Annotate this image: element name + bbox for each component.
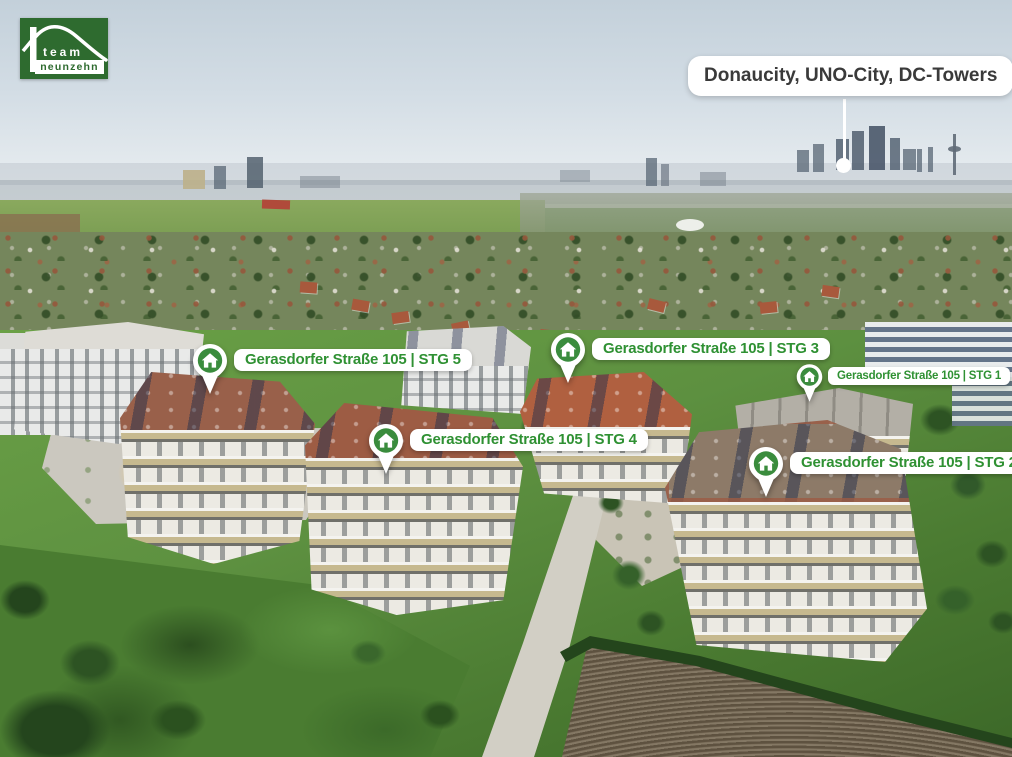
logo-text-team: team bbox=[43, 45, 83, 59]
marker-label: Gerasdorfer Straße 105 | STG 2 bbox=[790, 452, 1012, 474]
map-pin-stg5[interactable]: Gerasdorfer Straße 105 | STG 5 bbox=[192, 343, 472, 395]
building-stg5 bbox=[120, 372, 315, 564]
building-facade bbox=[120, 430, 315, 564]
callout-line bbox=[843, 99, 846, 159]
marker-label: Gerasdorfer Straße 105 | STG 4 bbox=[410, 429, 648, 451]
logo-text-neunzehn: neunzehn bbox=[35, 60, 104, 74]
team-neunzehn-logo: team neunzehn bbox=[20, 18, 108, 79]
building-facade bbox=[665, 502, 927, 662]
map-pin-stg4[interactable]: Gerasdorfer Straße 105 | STG 4 bbox=[368, 423, 648, 475]
marker-label: Gerasdorfer Straße 105 | STG 1 bbox=[828, 367, 1010, 385]
marker-label: Gerasdorfer Straße 105 | STG 3 bbox=[592, 338, 830, 360]
house-pin-icon bbox=[550, 332, 586, 384]
map-pin-stg3[interactable]: Gerasdorfer Straße 105 | STG 3 bbox=[550, 332, 830, 384]
map-pin-stg1[interactable]: Gerasdorfer Straße 105 | STG 1 bbox=[796, 363, 1010, 403]
callout-label: Donaucity, UNO-City, DC-Towers bbox=[688, 56, 1012, 96]
map-pin-stg2[interactable]: Gerasdorfer Straße 105 | STG 2 bbox=[748, 446, 1012, 498]
marker-label: Gerasdorfer Straße 105 | STG 5 bbox=[234, 349, 472, 371]
house-pin-icon bbox=[796, 363, 823, 403]
building-facade bbox=[305, 458, 523, 615]
aerial-photo-scene: team neunzehn Donaucity, UNO-City, DC-To… bbox=[0, 0, 1012, 757]
house-pin-icon bbox=[192, 343, 228, 395]
callout-dot bbox=[836, 158, 851, 173]
house-pin-icon bbox=[368, 423, 404, 475]
house-pin-icon bbox=[748, 446, 784, 498]
